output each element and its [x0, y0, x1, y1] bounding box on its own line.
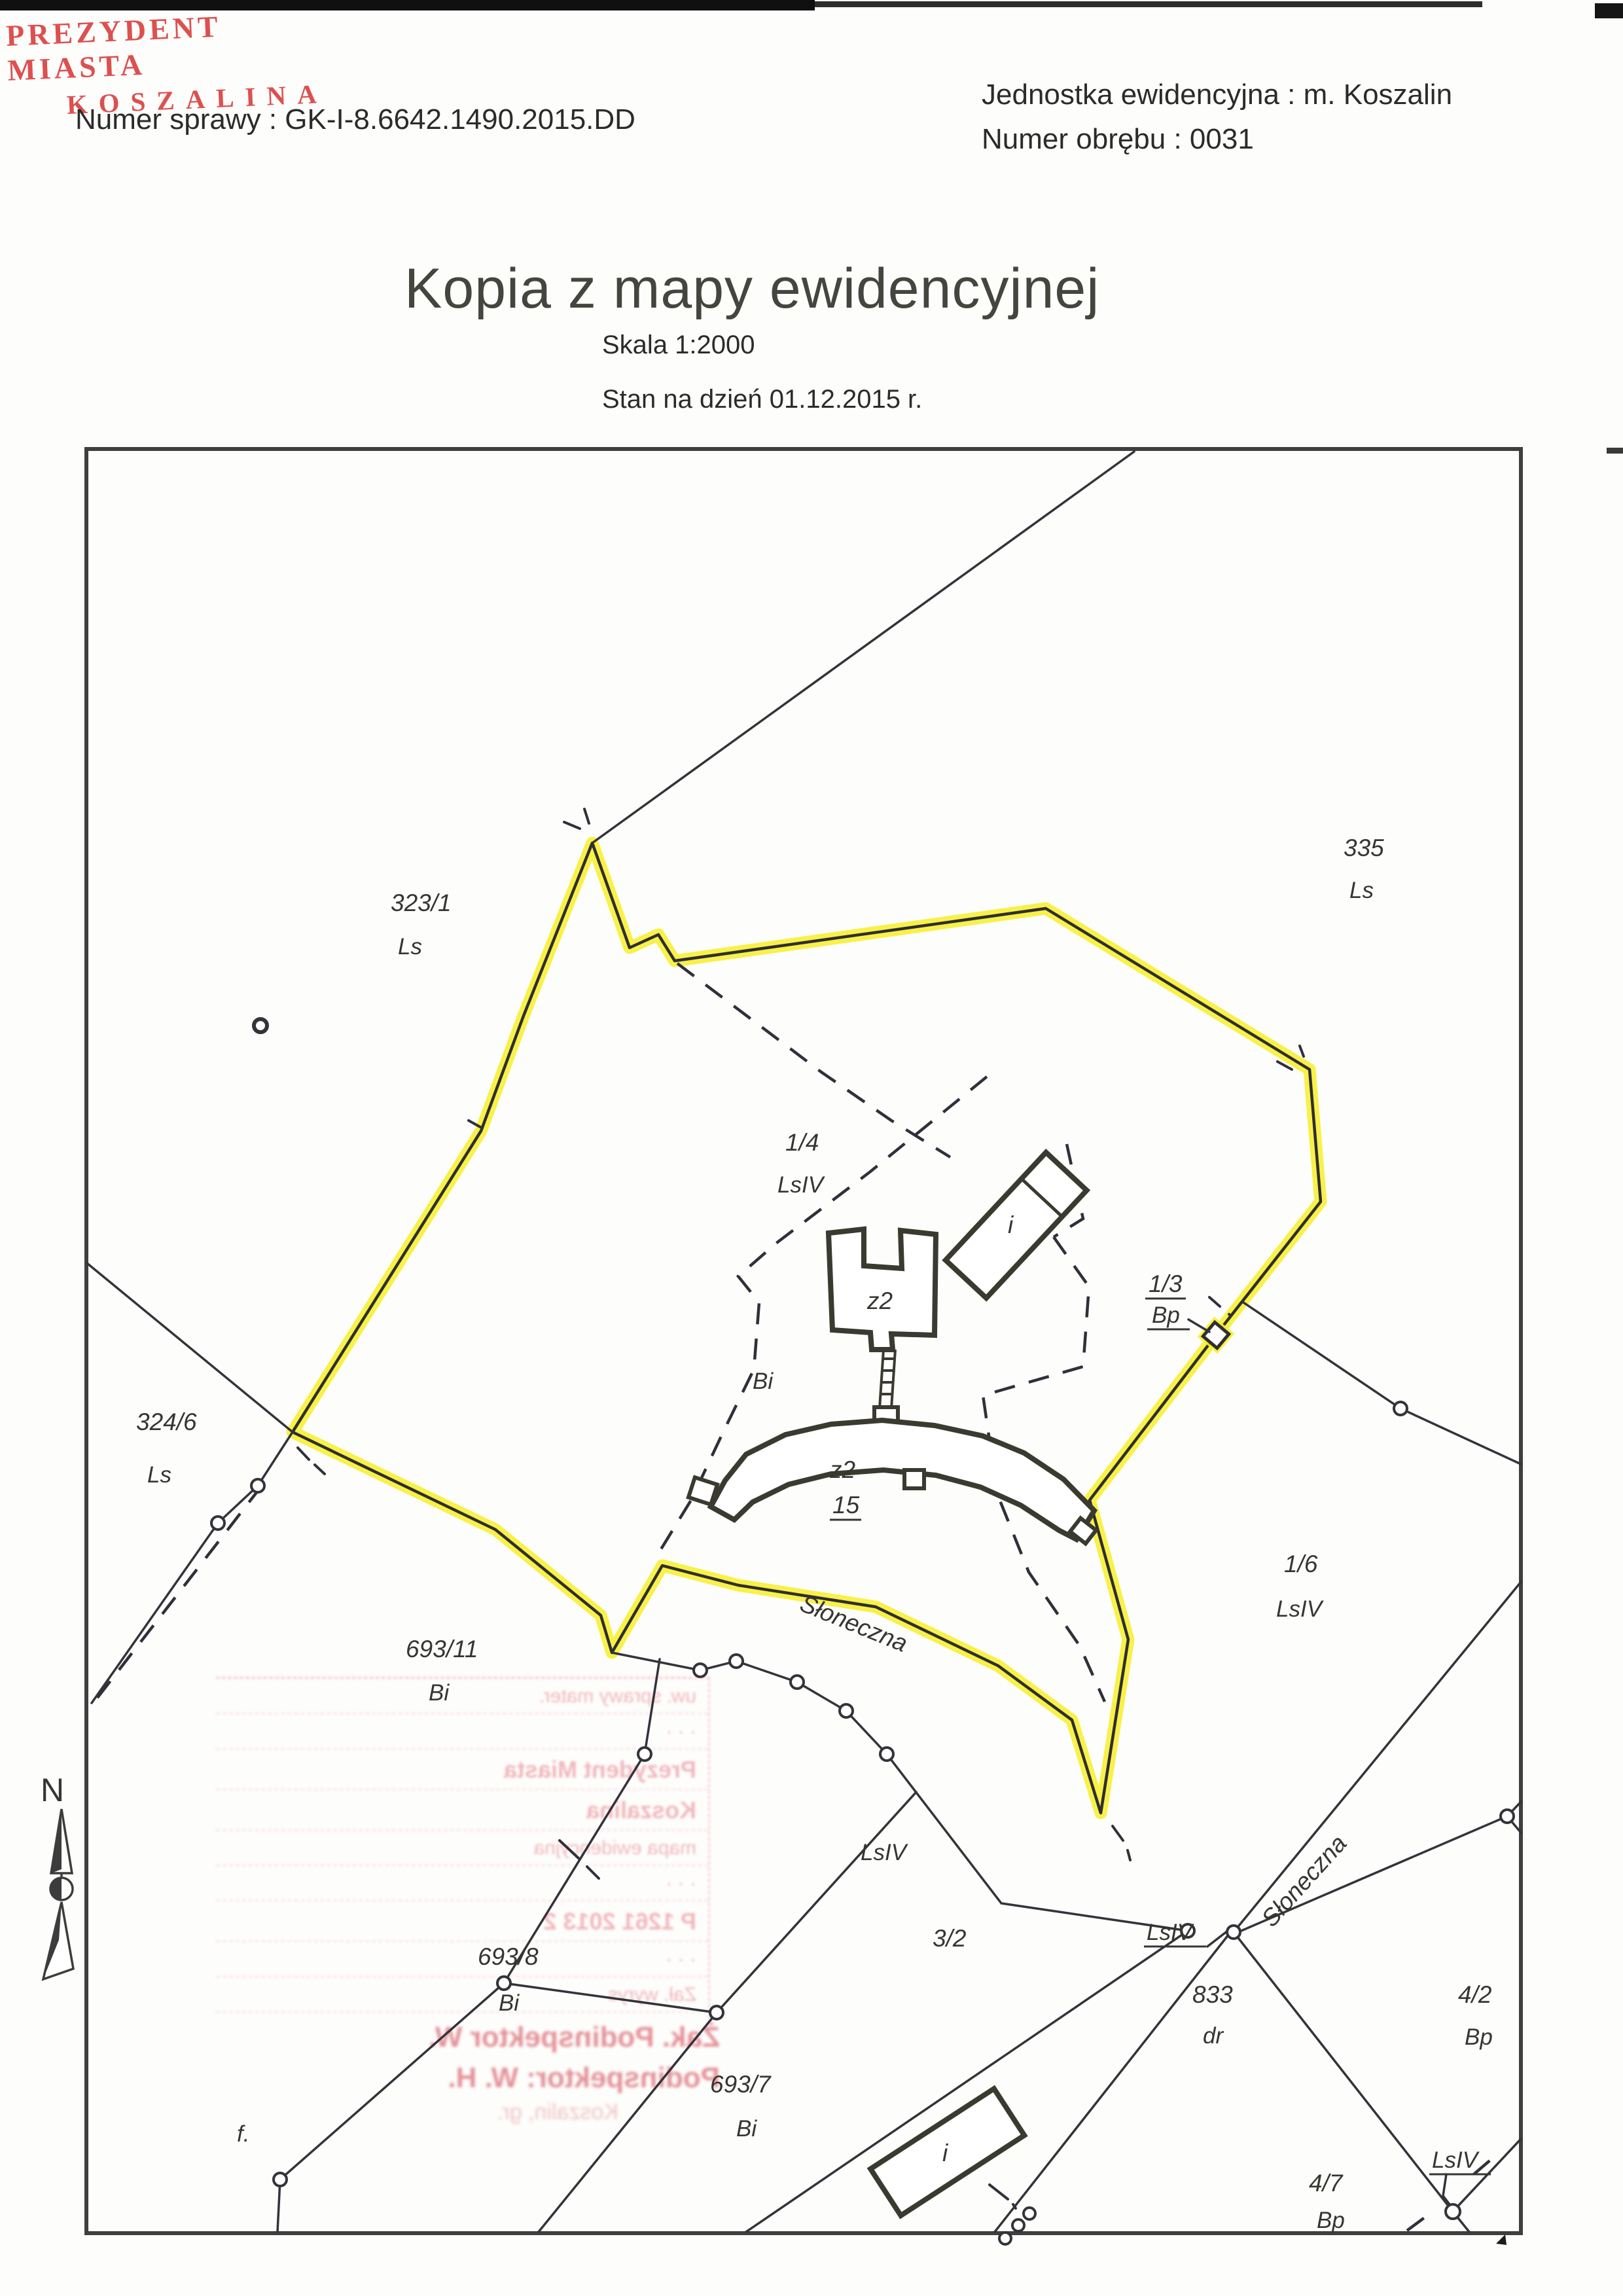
parcel-use: Bp: [1465, 2024, 1493, 2050]
north-arrow: N: [41, 1772, 73, 1979]
cadastral-map: 323/1 Ls 335 Ls 324/6 Ls 1/4 LsIV 1/3 Bp…: [0, 0, 1623, 2296]
use-label-bi: Bi: [753, 1369, 774, 1394]
parcel-number: 693/7: [710, 2071, 772, 2098]
scanned-document-page: PREZYDENT MIASTA KOSZALINA Numer sprawy …: [0, 0, 1623, 2296]
parcel-use: LsIV: [777, 1172, 826, 1198]
building-stub-left: [688, 1477, 717, 1505]
building-label-z2-lower: z2: [829, 1456, 856, 1483]
parcel-number: 323/1: [391, 889, 452, 916]
scan-artifact-arrowhead: [1496, 2234, 1507, 2245]
parcel-use: Ls: [1349, 878, 1374, 903]
parcel-use: Bi: [499, 1990, 520, 2016]
building-label-z2-upper: z2: [866, 1287, 893, 1314]
parcel-use: Bp: [1152, 1302, 1180, 1328]
parcel-number: 3/2: [933, 1925, 967, 1952]
parcel-use: Ls: [398, 934, 422, 960]
highlighted-boundary: [293, 843, 1321, 1813]
parcel-number: 833: [1192, 1981, 1233, 2008]
parcel-labels: 323/1 Ls 335 Ls 324/6 Ls 1/4 LsIV 1/3 Bp…: [136, 834, 1493, 2233]
parcel-number: 4/7: [1309, 2170, 1344, 2197]
parcel-number: 693/8: [478, 1943, 539, 1970]
north-letter: N: [41, 1772, 64, 1808]
parcel-use: Bp: [1317, 2208, 1345, 2233]
parcel-number: 1/3: [1149, 1270, 1183, 1297]
building-stub-center: [904, 1470, 924, 1488]
parcel-use: Bi: [429, 1680, 450, 1706]
building-i-upper: [946, 1153, 1087, 1299]
parcel-number: 4/2: [1458, 1981, 1492, 2008]
use-label-lsiv: LsIV: [861, 1840, 909, 1865]
building-connector: [874, 1350, 898, 1422]
parcel-number: 324/6: [136, 1408, 197, 1435]
parcel-use: LsIV: [1276, 1596, 1325, 1622]
parcel-use: Ls: [147, 1462, 171, 1488]
parcel-number: 1/4: [785, 1129, 819, 1156]
parcel-number: 335: [1344, 834, 1384, 861]
overlay-labels: Bi LsIV LsIV LsIV f. z2 z2 15 i i Słonec…: [237, 1211, 1491, 2174]
parcel-boundaries: [87, 452, 1521, 2232]
use-label-lsiv-junction: LsIV: [1147, 1920, 1195, 1945]
house-number-15: 15: [832, 1492, 860, 1518]
use-label-f: f.: [237, 2121, 249, 2147]
parcel-use: dr: [1203, 2023, 1224, 2049]
parcel-number: 693/11: [406, 1636, 478, 1662]
use-label-lsiv-corner: LsIV: [1432, 2147, 1480, 2173]
map-frame: [86, 449, 1521, 2233]
parcel-number: 1/6: [1284, 1551, 1318, 1577]
parcel-use: Bi: [736, 2116, 757, 2142]
